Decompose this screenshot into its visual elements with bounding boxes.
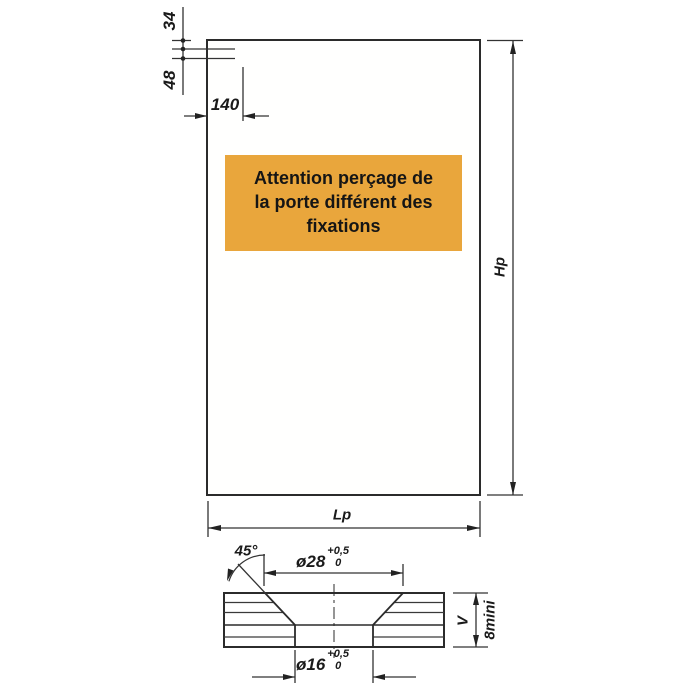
dim-label-34: 34 <box>160 12 180 31</box>
warning-box: Attention perçage de la porte différent … <box>225 155 462 251</box>
dia28-tol-lower: 0 <box>335 558 341 570</box>
dia16-tol-upper: +0,5 <box>327 649 349 661</box>
countersink-section <box>224 584 444 658</box>
dia28-tolerance: +0,5 0 <box>327 546 349 569</box>
dim-label-dia28: ø28 +0,5 0 <box>296 546 349 572</box>
drawing-linework <box>0 0 700 700</box>
warning-line-3: fixations <box>306 215 380 239</box>
dia28-tol-upper: +0,5 <box>327 546 349 558</box>
dim-label-48: 48 <box>160 71 180 90</box>
dia16-tolerance: +0,5 0 <box>327 649 349 672</box>
warning-line-2: la porte différent des <box>254 191 432 215</box>
dia28-value: ø28 <box>296 552 325 572</box>
dim-label-140: 140 <box>211 95 239 115</box>
dim-label-lp: Lp <box>333 507 351 524</box>
dia16-value: ø16 <box>296 655 325 675</box>
technical-drawing-canvas: Attention perçage de la porte différent … <box>0 0 700 700</box>
dimension-45deg <box>227 555 267 595</box>
dim-label-dia16: ø16 +0,5 0 <box>296 649 349 675</box>
dim-label-8mini: 8mini <box>482 600 499 639</box>
door-panel-outline <box>207 40 480 495</box>
dim-label-45deg: 45° <box>235 543 258 560</box>
warning-line-1: Attention perçage de <box>254 167 433 191</box>
dim-label-hp: Hp <box>492 257 509 277</box>
dia16-tol-lower: 0 <box>335 661 341 673</box>
dim-label-v: V <box>455 616 472 626</box>
